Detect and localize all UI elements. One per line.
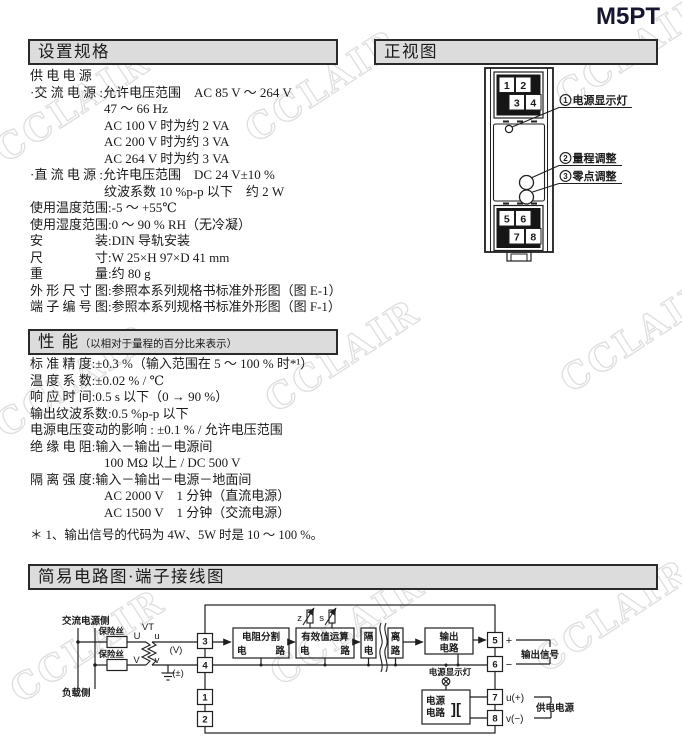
fuse-label: 保险丝 [98,649,125,659]
spec-line: 尺 寸:W 25×H 97×D 41 mm [30,250,360,267]
datasheet-page: CCLAIR CCLAIR CCLAIR CCLAIR CCLAIR CCLAI… [0,0,682,754]
load-side-label: 负载侧 [62,687,91,699]
common-input-label: (±) [172,668,184,679]
callout-3-number: 3 [563,172,568,181]
performance-line: 温 度 系 数:±0.02 % / ℃ [30,373,360,390]
terminal-number: 3 [514,97,520,109]
divider-block-label2: 电路 [237,645,285,657]
section-header-specs: 设置规格 [28,39,338,65]
spec-line: 纹波系数 10 %p-p 以下 约 2 W [30,184,360,201]
spec-line: ·交 流 电 源 :允许电压范围 AC 85 V ～ 264 V [30,85,360,102]
spec-line: 使用湿度范围:0 ～ 90 % RH（无冷凝） [30,217,360,234]
terminal-number: 8 [492,714,497,725]
phase-u-low-label: u [154,631,159,642]
divider-block-label: 电阻分割 [242,631,280,643]
section-header-performance-note: （以相对于量程的百分比来表示） [80,339,238,350]
isolation-block-label: 隔 [364,631,374,643]
front-view-drawing: 1 2 3 4 5 6 7 8 1 电源显示灯 2 量程调整 3 零点调整 [370,62,682,292]
rms-block-label: 有效值运算 [301,631,349,643]
performance-line: AC 2000 V 1 分钟（直流电源） [30,488,360,505]
terminal-number: 4 [202,661,208,672]
performance-list: 标 准 精 度:±0.3 %（输入范围在 5 ～ 100 % 时*¹）温 度 系… [30,356,360,521]
span-trimmer-icon [325,608,336,628]
callout-1-label: 电源显示灯 [573,93,628,107]
callout-2-label: 量程调整 [573,151,617,165]
supply-u-label: u(+) [506,693,524,704]
terminal-number: 1 [202,693,208,704]
supply-wires [470,697,488,718]
spec-line: ·直 流 电 源 :允许电压范围 DC 24 V±10 % [30,167,360,184]
terminal-number: 2 [202,715,207,726]
terminal-number: 7 [514,231,520,243]
performance-line: 响 应 时 间:0.5 s 以下（0 → 90 %） [30,389,360,406]
spec-line: 供 电 电 源 [30,68,360,85]
section-header-performance: 性 能（以相对于量程的百分比来表示） [28,329,338,355]
phase-v-low-label: v [155,655,160,666]
power-block-label2: 电路 [426,707,446,719]
output-block-label2: 电路 [439,643,459,655]
vt-label: VT [142,622,154,633]
device-body-panel [494,124,545,201]
terminal-block-bottom [494,206,543,251]
section-header-front-view-label: 正视图 [384,42,438,61]
spec-line: AC 264 V 时为约 3 VA [30,151,360,168]
phase-v-label: V [133,655,140,666]
performance-line: 隔 离 强 度:输入－输出－电源－地面间 [30,472,360,489]
spec-line: 安 装:DIN 导轨安装 [30,233,360,250]
zero-adjust-knob-icon [520,190,534,204]
callout-3-label: 零点调整 [572,169,617,183]
terminal-number: 3 [202,637,207,648]
performance-line: 输出纹波系数:0.5 %p-p 以下 [30,406,360,423]
fuse-label: 保险丝 [98,626,125,636]
spec-line: 外 形 尺 寸 图:参照本系列规格书标准外形图（图 E-1） [30,283,360,300]
output-block-label: 输出 [439,631,458,643]
section-header-front-view: 正视图 [374,39,658,65]
lamp-label: 电源显示灯 [429,667,472,677]
terminal-number: 4 [530,97,536,109]
performance-line: 绝 缘 电 阻:输入－输出－电源间 [30,439,360,456]
output-minus-label: − [506,659,512,671]
rms-block-label2: 电路 [300,645,350,657]
supply-label: 供电电源 [535,702,575,714]
spec-line: 使用温度范围:-5 ～ +55℃ [30,200,360,217]
spec-line: 端 子 编 号 图:参照本系列规格书标准外形图（图 F-1） [30,299,360,316]
terminal-number: 1 [504,80,510,92]
section-header-circuit-label: 简易电路图·端子接线图 [38,567,225,586]
voltage-input-label: (V) [170,645,183,656]
performance-line: 100 MΩ 以上 / DC 500 V [30,455,360,472]
terminal-block-top [494,72,543,118]
zero-trim-label: z [297,613,302,624]
isolation-block-label: 路 [391,645,401,657]
output-plus-label: + [506,635,512,647]
terminal-number: 5 [492,636,498,647]
common-bus [213,654,488,665]
power-led-icon [505,125,512,132]
section-header-performance-label: 性 能 [38,332,80,351]
isolation-block-label: 电 [364,645,374,657]
performance-line: 标 准 精 度:±0.3 %（输入范围在 5 ～ 100 % 时*¹） [30,356,360,373]
performance-line: AC 1500 V 1 分钟（交流电源） [30,505,360,522]
terminal-number: 6 [520,213,526,225]
callout-1-number: 1 [563,96,568,105]
terminal-number: 5 [504,213,510,225]
terminal-number: 6 [492,660,497,671]
terminal-number: 8 [530,231,536,243]
spec-line: 重 量:约 80 g [30,266,360,283]
power-transformer-icon: ][ [451,701,461,718]
spec-line: AC 200 V 时为约 3 VA [30,134,360,151]
spec-line: AC 100 V 时为约 2 VA [30,118,360,135]
zero-trimmer-icon [303,608,314,628]
section-header-circuit: 简易电路图·端子接线图 [28,564,658,590]
section-header-specs-label: 设置规格 [38,42,110,61]
circuit-diagram: 3 4 1 2 5 6 7 8 交流电源侧 负载侧 保险丝 保险丝 U VT u… [0,594,682,754]
isolation-block-label: 离 [391,631,401,643]
spec-list: 供 电 电 源·交 流 电 源 :允许电压范围 AC 85 V ～ 264 V4… [30,68,360,316]
supply-v-label: v(−) [506,714,524,725]
terminal-number: 7 [492,693,497,704]
din-clip [507,252,531,261]
footnote: ＊ 1、输出信号的代码为 4W、5W 时是 10 ～ 100 %。 [30,524,323,543]
power-block-label: 电源 [426,695,446,707]
callout-2-number: 2 [563,154,568,163]
performance-line: 电源电压变动的影响 : ±0.1 % / 允许电压范围 [30,422,360,439]
spec-line: 47 ～ 66 Hz [30,101,360,118]
lamp-icon [442,678,450,686]
page-title: M5PT [596,3,660,31]
span-trim-label: s [319,613,324,624]
output-signal-label: 输出信号 [521,649,560,661]
phase-u-label: U [134,631,141,642]
terminal-number: 2 [520,80,526,92]
